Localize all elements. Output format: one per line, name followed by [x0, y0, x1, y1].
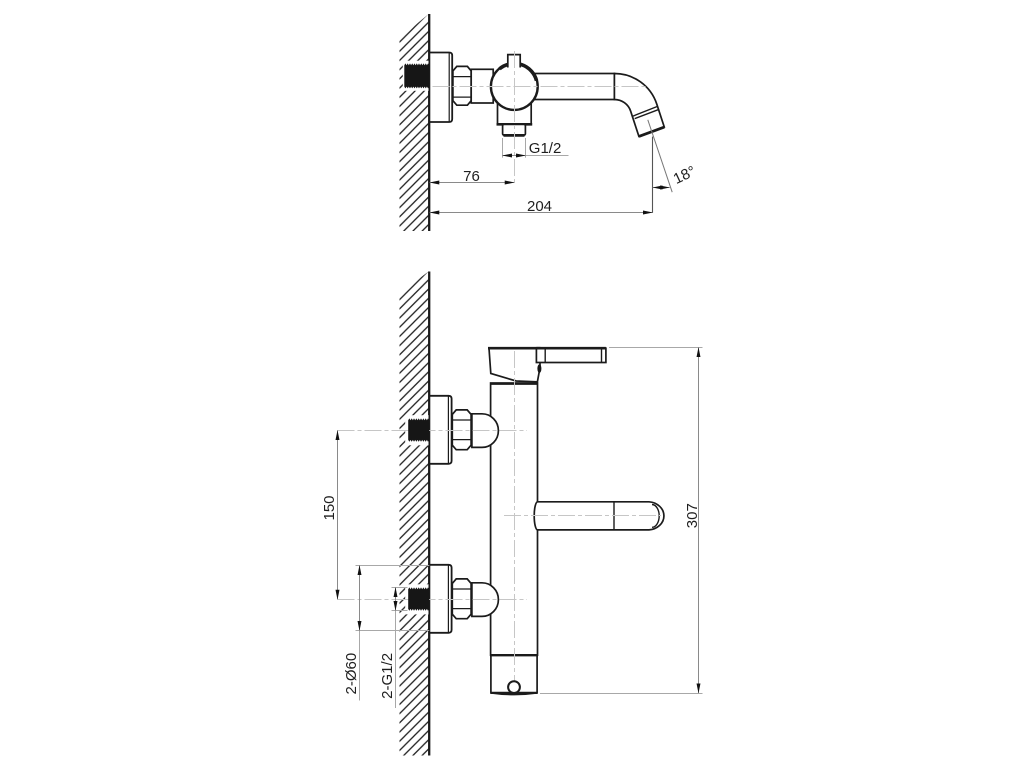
svg-text:2-G1/2: 2-G1/2	[379, 653, 396, 699]
svg-text:307: 307	[684, 503, 701, 528]
svg-text:G1/2: G1/2	[529, 140, 562, 157]
svg-text:76: 76	[463, 168, 480, 185]
svg-text:150: 150	[321, 495, 338, 520]
svg-text:2-Ø60: 2-Ø60	[343, 653, 360, 695]
svg-text:204: 204	[527, 198, 552, 215]
